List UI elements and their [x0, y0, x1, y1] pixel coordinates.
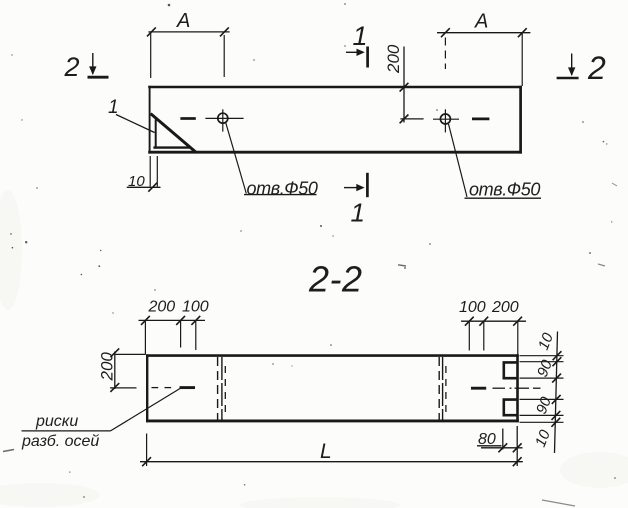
svg-text:2: 2 — [587, 50, 606, 86]
svg-text:A: A — [176, 10, 190, 32]
svg-text:10: 10 — [128, 173, 145, 190]
svg-text:1: 1 — [353, 21, 368, 51]
svg-text:отв.Ф50: отв.Ф50 — [469, 180, 540, 200]
svg-text:риски: риски — [35, 413, 78, 430]
svg-text:80: 80 — [478, 431, 496, 448]
svg-text:L: L — [320, 440, 332, 463]
svg-text:2-2: 2-2 — [308, 259, 363, 300]
svg-text:200: 200 — [384, 44, 403, 74]
svg-text:отв.Ф50: отв.Ф50 — [247, 179, 318, 199]
svg-text:1: 1 — [351, 198, 365, 228]
svg-text:200: 200 — [148, 299, 176, 316]
svg-text:разб. осей: разб. осей — [21, 433, 99, 450]
svg-text:200: 200 — [98, 352, 117, 382]
svg-text:A: A — [474, 11, 488, 33]
svg-text:2: 2 — [64, 52, 80, 82]
svg-text:200: 200 — [491, 299, 519, 316]
svg-text:100: 100 — [182, 299, 209, 316]
svg-text:100: 100 — [459, 299, 486, 316]
